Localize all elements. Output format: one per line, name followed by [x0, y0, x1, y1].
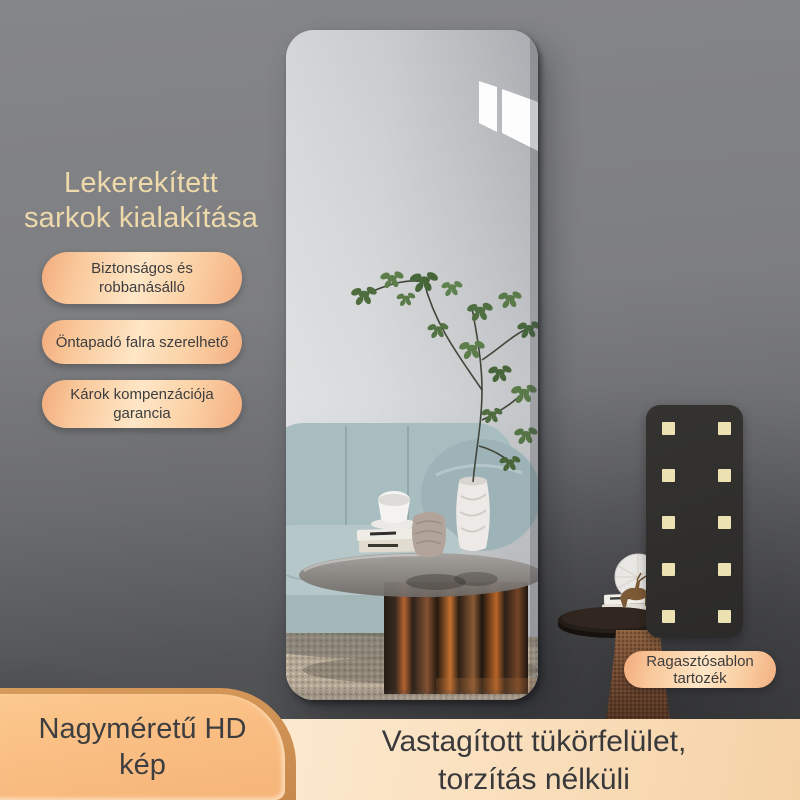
mirror-product — [286, 30, 538, 700]
adhesive-dot — [718, 516, 731, 529]
template-badge: Ragasztósablon tartozék — [624, 651, 776, 688]
adhesive-dot — [718, 422, 731, 435]
adhesive-dot — [662, 469, 675, 482]
mirror-reflection-scene — [286, 30, 538, 700]
bottom-caption-band: Vastagított tükörfelület, torzítás nélkü… — [268, 719, 800, 800]
hd-card-label: Nagyméretű HD kép — [39, 711, 247, 783]
pill-label: Öntapadó falra szerelhető — [56, 333, 229, 352]
feature-pill-safety: Biztonságos és robbanásálló — [42, 252, 242, 304]
badge-label: Ragasztósablon tartozék — [646, 653, 754, 687]
adhesive-dot-grid — [662, 422, 731, 623]
adhesive-template-panel — [646, 405, 743, 638]
books-on-table — [357, 528, 419, 553]
pill-label: Károk kompenzációja garancia — [70, 385, 213, 423]
feature-pill-adhesive: Öntapadó falra szerelhető — [42, 320, 242, 364]
adhesive-dot — [662, 610, 675, 623]
adhesive-dot — [718, 563, 731, 576]
feature-pill-warranty: Károk kompenzációja garancia — [42, 380, 242, 428]
hd-card: Nagyméretű HD kép — [0, 694, 285, 800]
adhesive-dot — [662, 422, 675, 435]
adhesive-dot — [662, 563, 675, 576]
adhesive-dot — [662, 516, 675, 529]
pill-label: Biztonságos és robbanásálló — [91, 259, 193, 297]
bottom-caption: Vastagított tükörfelület, torzítás nélkü… — [382, 723, 687, 799]
adhesive-dot — [718, 469, 731, 482]
adhesive-dot — [718, 610, 731, 623]
headline: Lekerekített sarkok kialakítása — [0, 166, 282, 236]
product-poster: Lekerekített sarkok kialakítása Biztonsá… — [0, 0, 800, 800]
